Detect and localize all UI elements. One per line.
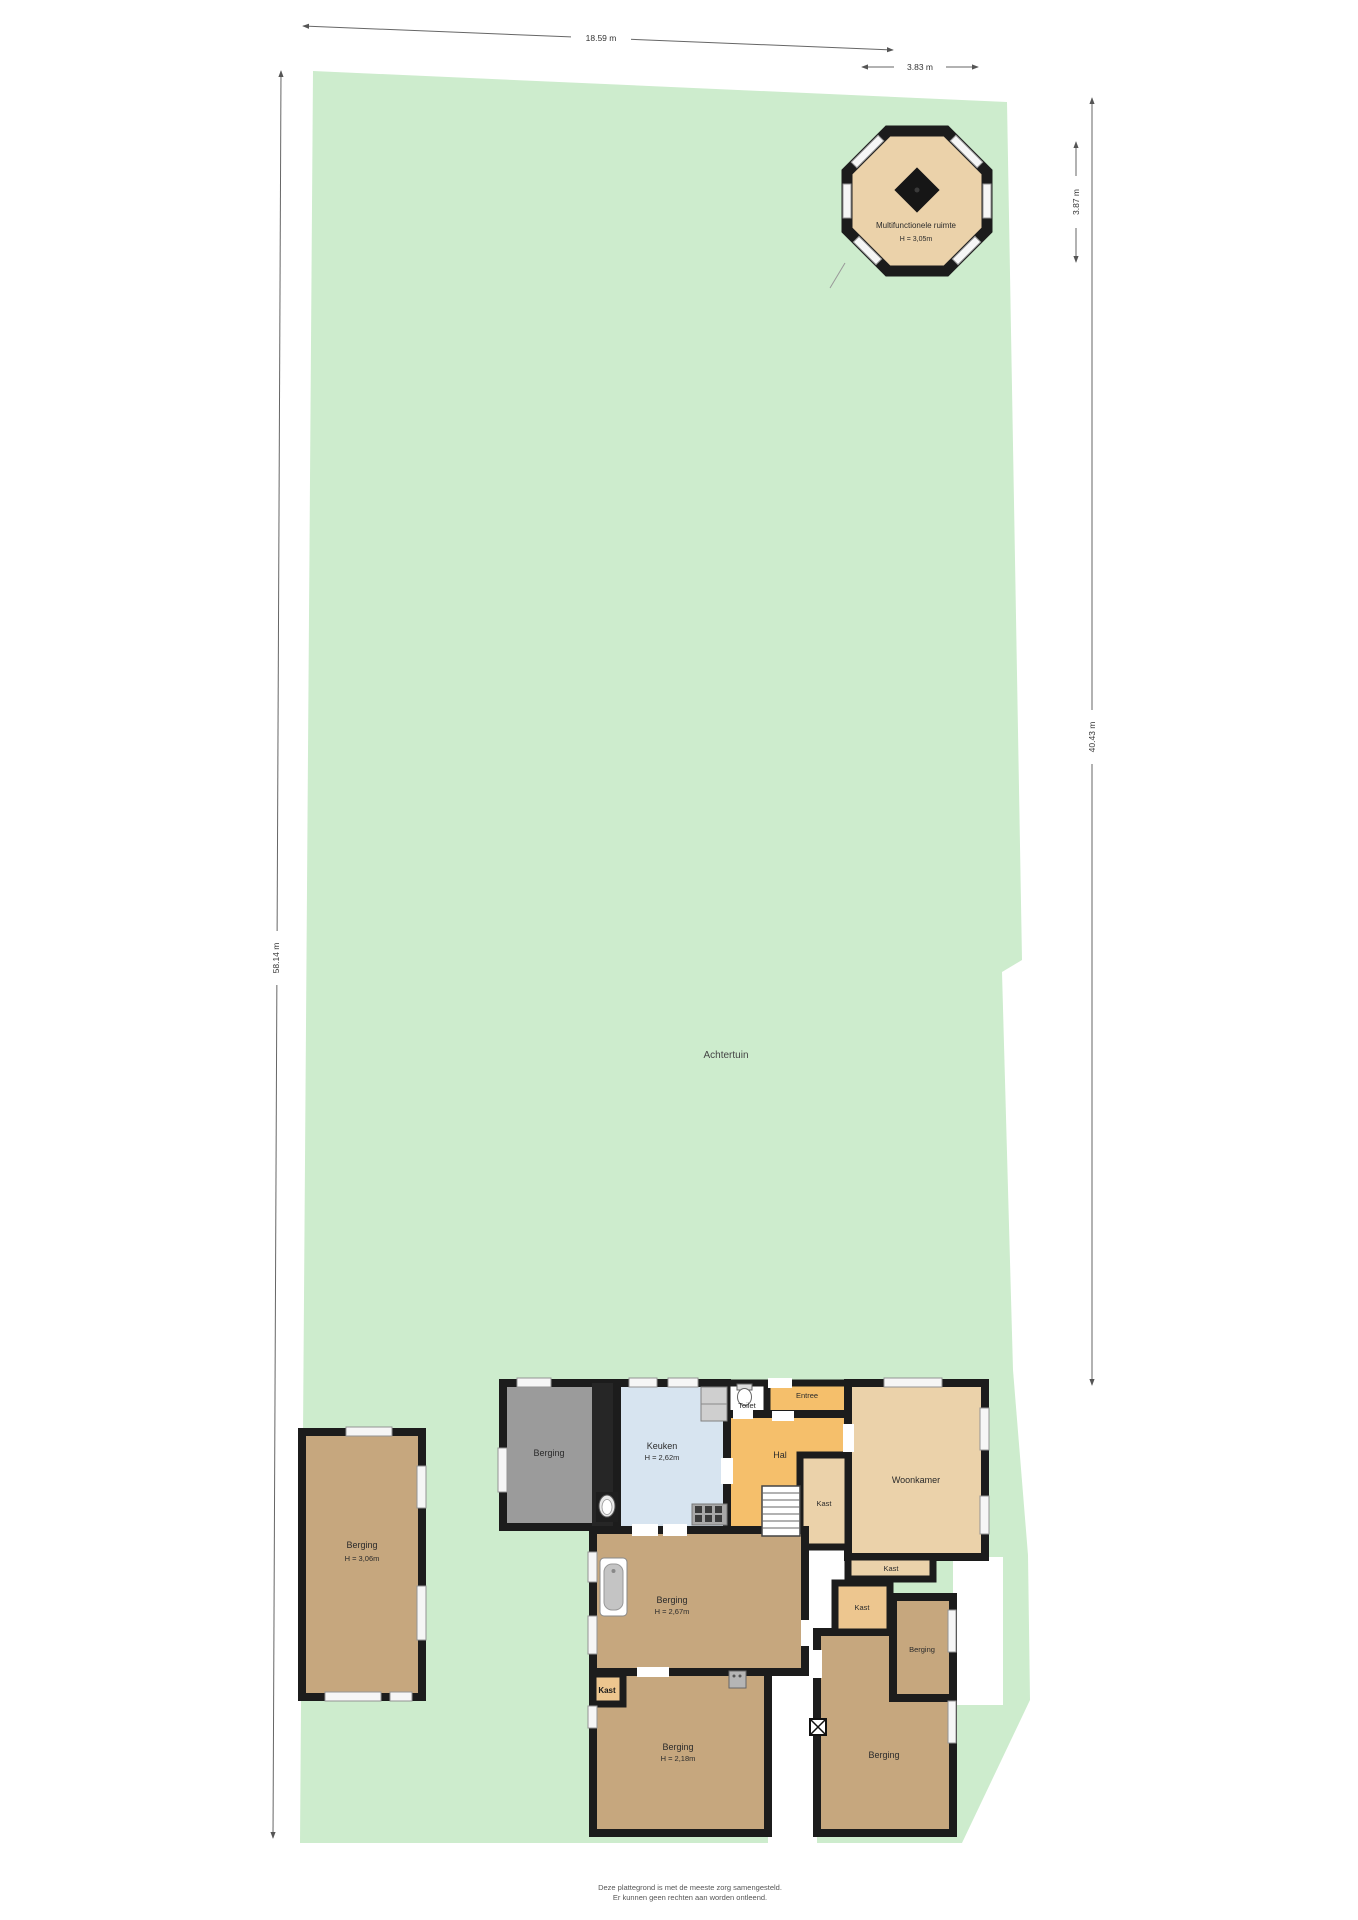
room-woonkamer (848, 1383, 985, 1557)
window (629, 1378, 657, 1387)
door-opening (721, 1458, 733, 1484)
room-keuken-height: H = 2,62m (645, 1453, 680, 1462)
window (980, 1408, 989, 1450)
dimension-plot-right-label: 40.43 m (1087, 722, 1097, 753)
room-berging-mid-height: H = 2,67m (655, 1607, 690, 1616)
room-toilet-label: Toilet (738, 1401, 756, 1410)
window (325, 1692, 381, 1701)
octagon-height-label: H = 3,05m (900, 236, 933, 243)
floorplan: 18.59 m 3.83 m 3.87 m 40.43 m 58.14 m Ac… (0, 0, 1358, 1920)
door-opening (843, 1424, 854, 1452)
window (346, 1427, 392, 1436)
dimension-octagon-height-label: 3.87 m (1071, 189, 1081, 215)
window (948, 1701, 956, 1743)
room-kast-bottom-label: Kast (598, 1686, 616, 1695)
window (980, 1496, 989, 1534)
window (517, 1378, 551, 1387)
outbuilding-floor (302, 1432, 422, 1697)
room-berging-bottom-left-height: H = 2,18m (661, 1754, 696, 1763)
window (588, 1616, 597, 1654)
room-hal-label: Hal (773, 1450, 787, 1460)
room-kast-strip-label: Kast (883, 1564, 899, 1573)
room-kast-stairs-label: Kast (816, 1499, 832, 1508)
window (390, 1692, 412, 1701)
room-berging-right-label: Berging (909, 1645, 935, 1654)
room-entree-label: Entree (796, 1391, 818, 1400)
stove-icon (692, 1504, 727, 1525)
dimension-plot-left-label: 58.14 m (271, 943, 281, 974)
room-woonkamer-label: Woonkamer (892, 1475, 940, 1485)
door-opening (733, 1409, 753, 1419)
room-berging-bottom-right-label: Berging (868, 1750, 899, 1760)
outbuilding-height-label: H = 3,06m (345, 1554, 380, 1563)
door-opening (812, 1650, 822, 1678)
window (588, 1552, 597, 1582)
room-kast-small-label: Kast (854, 1603, 870, 1612)
dimension-octagon-height: 3.87 m (1069, 142, 1082, 262)
stairs (762, 1486, 800, 1536)
room-keuken-label: Keuken (647, 1441, 678, 1451)
bathtub-icon (600, 1558, 627, 1616)
outbuilding-label: Berging (346, 1540, 377, 1550)
octagon-label: Multifunctionele ruimte (876, 221, 957, 230)
room-berging-bottom-left-label: Berging (662, 1742, 693, 1752)
window (668, 1378, 698, 1387)
disclaimer-line1: Deze plattegrond is met de meeste zorg s… (598, 1883, 782, 1892)
window (983, 184, 991, 218)
door-opening (772, 1411, 794, 1421)
dimension-plot-right: 40.43 m (1085, 98, 1098, 1385)
window (843, 184, 851, 218)
dimension-top-width-label: 18.59 m (586, 33, 617, 43)
door-opening (801, 1620, 810, 1646)
dimension-top-width: 18.59 m (303, 26, 893, 50)
garden-label: Achtertuin (703, 1050, 748, 1061)
window (498, 1448, 507, 1492)
window (948, 1610, 956, 1652)
washer-icon (729, 1671, 746, 1688)
chimney-pipe (915, 188, 920, 193)
disclaimer-line2: Er kunnen geen rechten aan worden ontlee… (613, 1893, 767, 1902)
dimension-plot-left: 58.14 m (269, 71, 282, 1838)
outbuilding-berging: Berging H = 3,06m (302, 1427, 426, 1701)
dimension-octagon-width: 3.83 m (862, 60, 978, 73)
door-opening (663, 1524, 687, 1536)
kitchen-counter-icon (701, 1387, 727, 1421)
interior-gap (953, 1557, 1003, 1705)
door-opening (637, 1667, 669, 1677)
meter-box-icon (810, 1719, 826, 1735)
door-opening (768, 1378, 792, 1388)
window (588, 1706, 597, 1728)
window (417, 1466, 426, 1508)
floorplan-canvas: 18.59 m 3.83 m 3.87 m 40.43 m 58.14 m Ac… (0, 0, 1358, 1920)
door-opening (632, 1524, 658, 1536)
window (884, 1378, 942, 1387)
dimension-octagon-width-label: 3.83 m (907, 62, 933, 72)
room-berging-mid-label: Berging (656, 1595, 687, 1605)
sink-icon (596, 1492, 618, 1522)
room-berging-annex-label: Berging (533, 1448, 564, 1458)
window (417, 1586, 426, 1640)
